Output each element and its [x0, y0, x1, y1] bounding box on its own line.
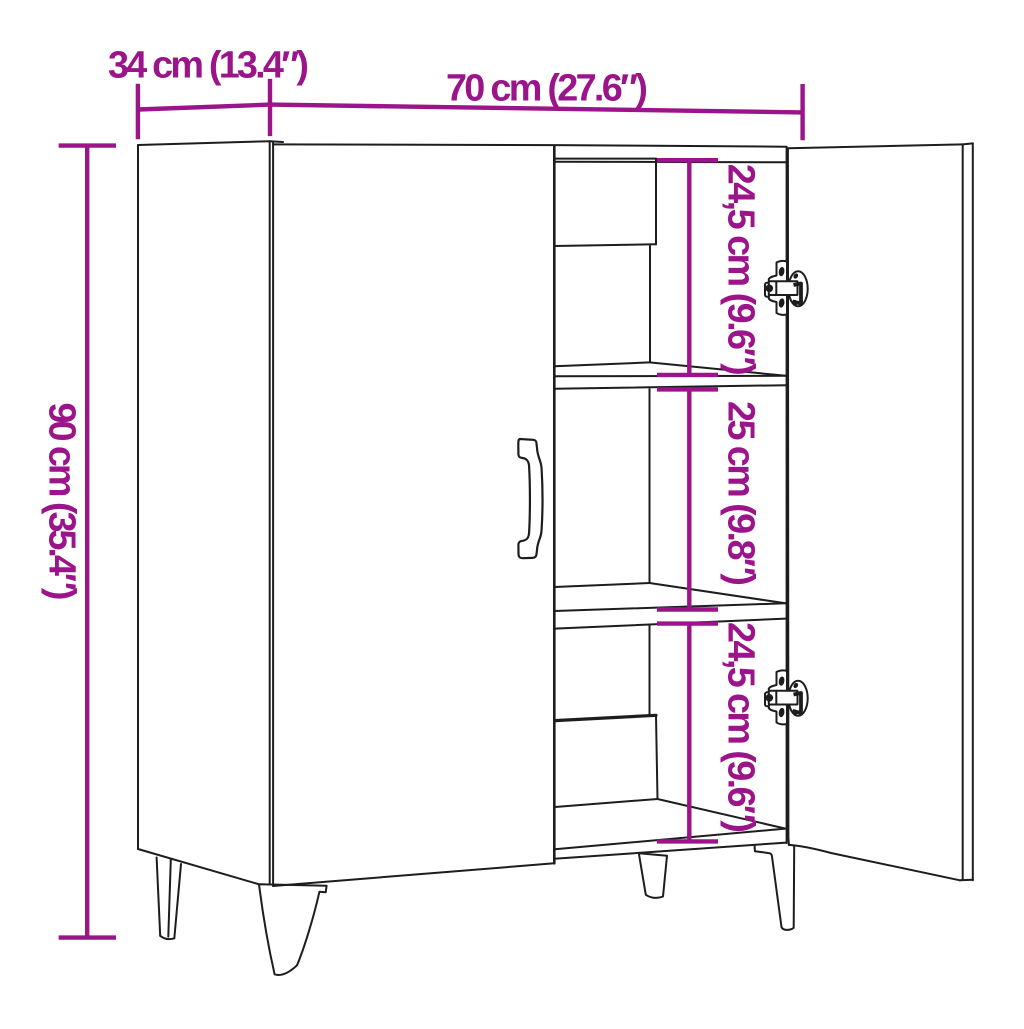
svg-text:90 cm (35.4″): 90 cm (35.4″): [41, 403, 83, 601]
svg-text:70 cm (27.6″): 70 cm (27.6″): [446, 68, 648, 110]
svg-text:24,5 cm (9.6″): 24,5 cm (9.6″): [720, 622, 762, 833]
svg-text:34 cm (13.4″): 34 cm (13.4″): [108, 45, 309, 87]
svg-text:25 cm (9.8″): 25 cm (9.8″): [720, 401, 762, 586]
svg-text:24,5 cm (9.6″): 24,5 cm (9.6″): [720, 164, 762, 376]
